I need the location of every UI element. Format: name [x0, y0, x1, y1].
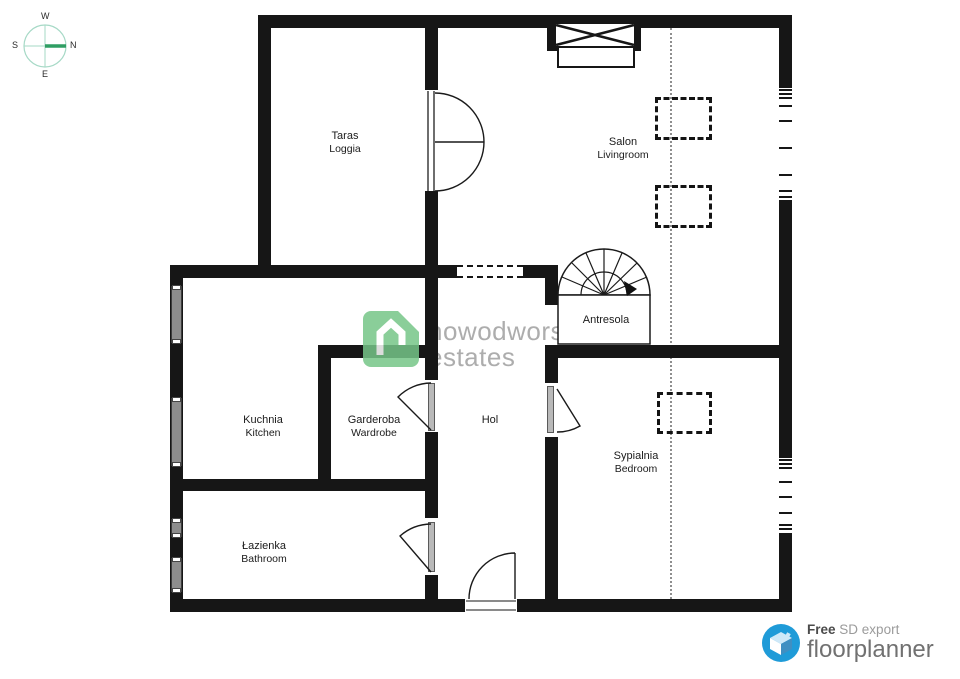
room-label-hol: Hol	[482, 414, 499, 427]
room-label-garderoba: Garderoba Wardrobe	[348, 414, 401, 440]
room-label-salon: Salon Livingroom	[597, 136, 648, 162]
room-name-pl: Kuchnia	[243, 414, 283, 427]
dashed-opening-rect-3	[657, 392, 712, 434]
room-name-pl: Garderoba	[348, 414, 401, 427]
floor-plan-canvas: nowodworski estates Tar	[0, 0, 960, 679]
compass-s: S	[12, 40, 18, 50]
chimney-flue-icon	[556, 25, 634, 45]
room-name-en: Bedroom	[614, 463, 659, 476]
room-label-sypialnia: Sypialnia Bedroom	[614, 450, 659, 476]
room-name-pl: Sypialnia	[614, 450, 659, 463]
floorplanner-branding: Free SD export floorplanner	[755, 618, 955, 672]
door-sypialnia	[557, 389, 580, 432]
room-label-lazienka: Łazienka Bathroom	[241, 540, 287, 566]
room-name-en: Livingroom	[597, 149, 648, 162]
compass-w: W	[41, 11, 50, 21]
compass-e: E	[42, 69, 48, 79]
door-lazienka	[400, 524, 431, 572]
free-sd-export-label: Free SD export	[807, 622, 934, 637]
nowodworski-logo-icon	[363, 311, 419, 367]
spiral-staircase	[558, 249, 650, 344]
sd-export-label: SD export	[839, 622, 899, 637]
compass-rose: W S N E	[10, 10, 80, 80]
door-garderoba	[398, 383, 431, 430]
room-label-taras: Taras Loggia	[329, 130, 361, 156]
dashed-opening-rect-2	[655, 185, 712, 228]
room-name-pl: Łazienka	[241, 540, 287, 553]
door-swings	[398, 93, 580, 599]
room-label-antresola: Antresola	[583, 314, 629, 327]
compass-n: N	[70, 40, 77, 50]
room-name-en: Loggia	[329, 143, 361, 156]
room-name-pl: Salon	[597, 136, 648, 149]
floorplanner-wordmark: floorplanner	[807, 637, 934, 663]
floorplanner-logo-icon	[762, 624, 800, 662]
room-name-pl: Taras	[329, 130, 361, 143]
room-label-kuchnia: Kuchnia Kitchen	[243, 414, 283, 440]
door-entrance	[469, 553, 515, 599]
room-name-en: Bathroom	[241, 553, 287, 566]
room-name-pl: Hol	[482, 414, 499, 427]
room-name-pl: Antresola	[583, 314, 629, 327]
dashed-opening-rect-1	[655, 97, 712, 140]
room-name-en: Kitchen	[243, 427, 283, 440]
room-name-en: Wardrobe	[348, 427, 401, 440]
doors-and-stairs-overlay	[0, 0, 960, 679]
french-door-taras	[435, 93, 484, 191]
free-label: Free	[807, 622, 836, 637]
